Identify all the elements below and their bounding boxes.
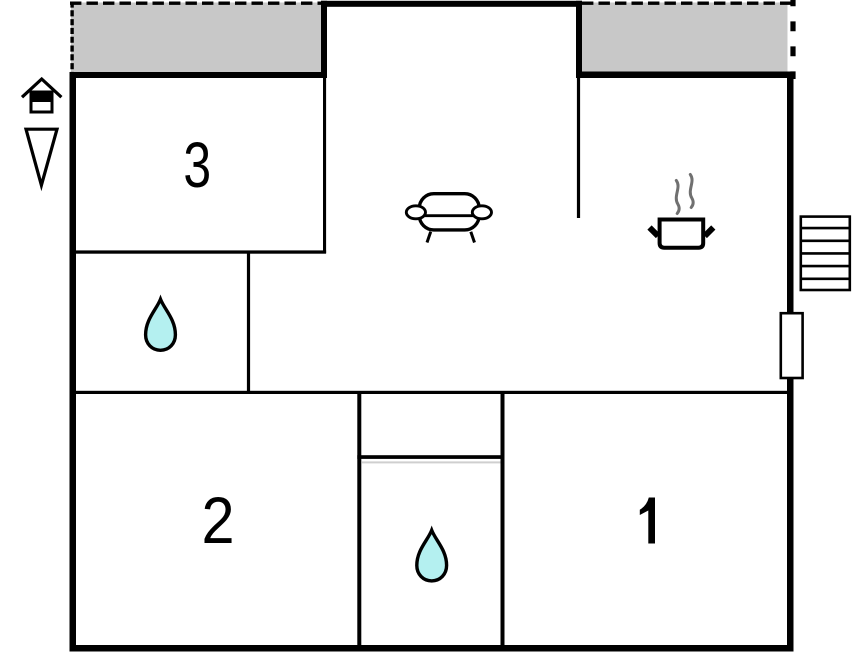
svg-text:3: 3	[183, 130, 211, 201]
svg-text:2: 2	[201, 484, 234, 558]
